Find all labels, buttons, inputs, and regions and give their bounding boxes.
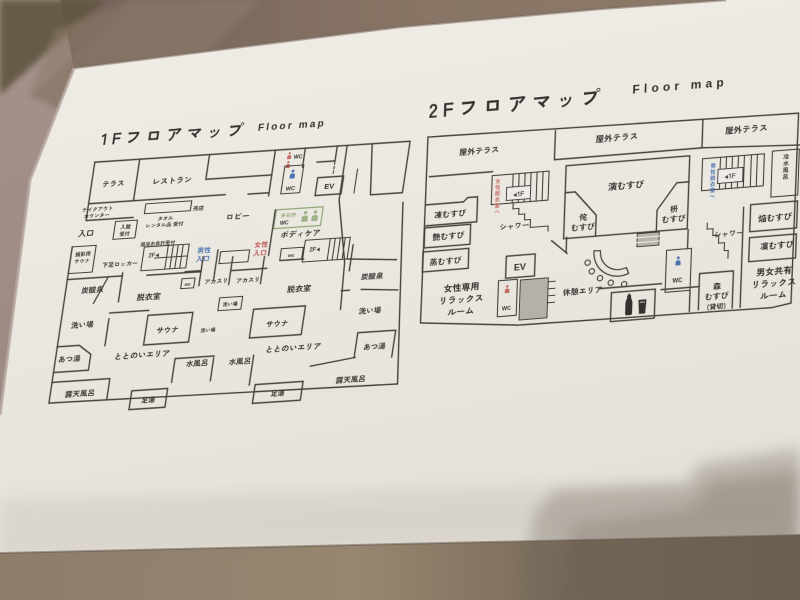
svg-text:EV: EV	[324, 181, 335, 191]
svg-text:wc: wc	[183, 282, 191, 287]
svg-text:WC: WC	[279, 220, 289, 227]
svg-text:WC: WC	[293, 154, 303, 161]
svg-text:WC: WC	[285, 186, 295, 193]
svg-text:EV: EV	[514, 262, 526, 273]
svg-text:wc: wc	[286, 253, 295, 259]
svg-text:WC: WC	[502, 306, 511, 313]
svg-text:WC: WC	[672, 278, 683, 285]
